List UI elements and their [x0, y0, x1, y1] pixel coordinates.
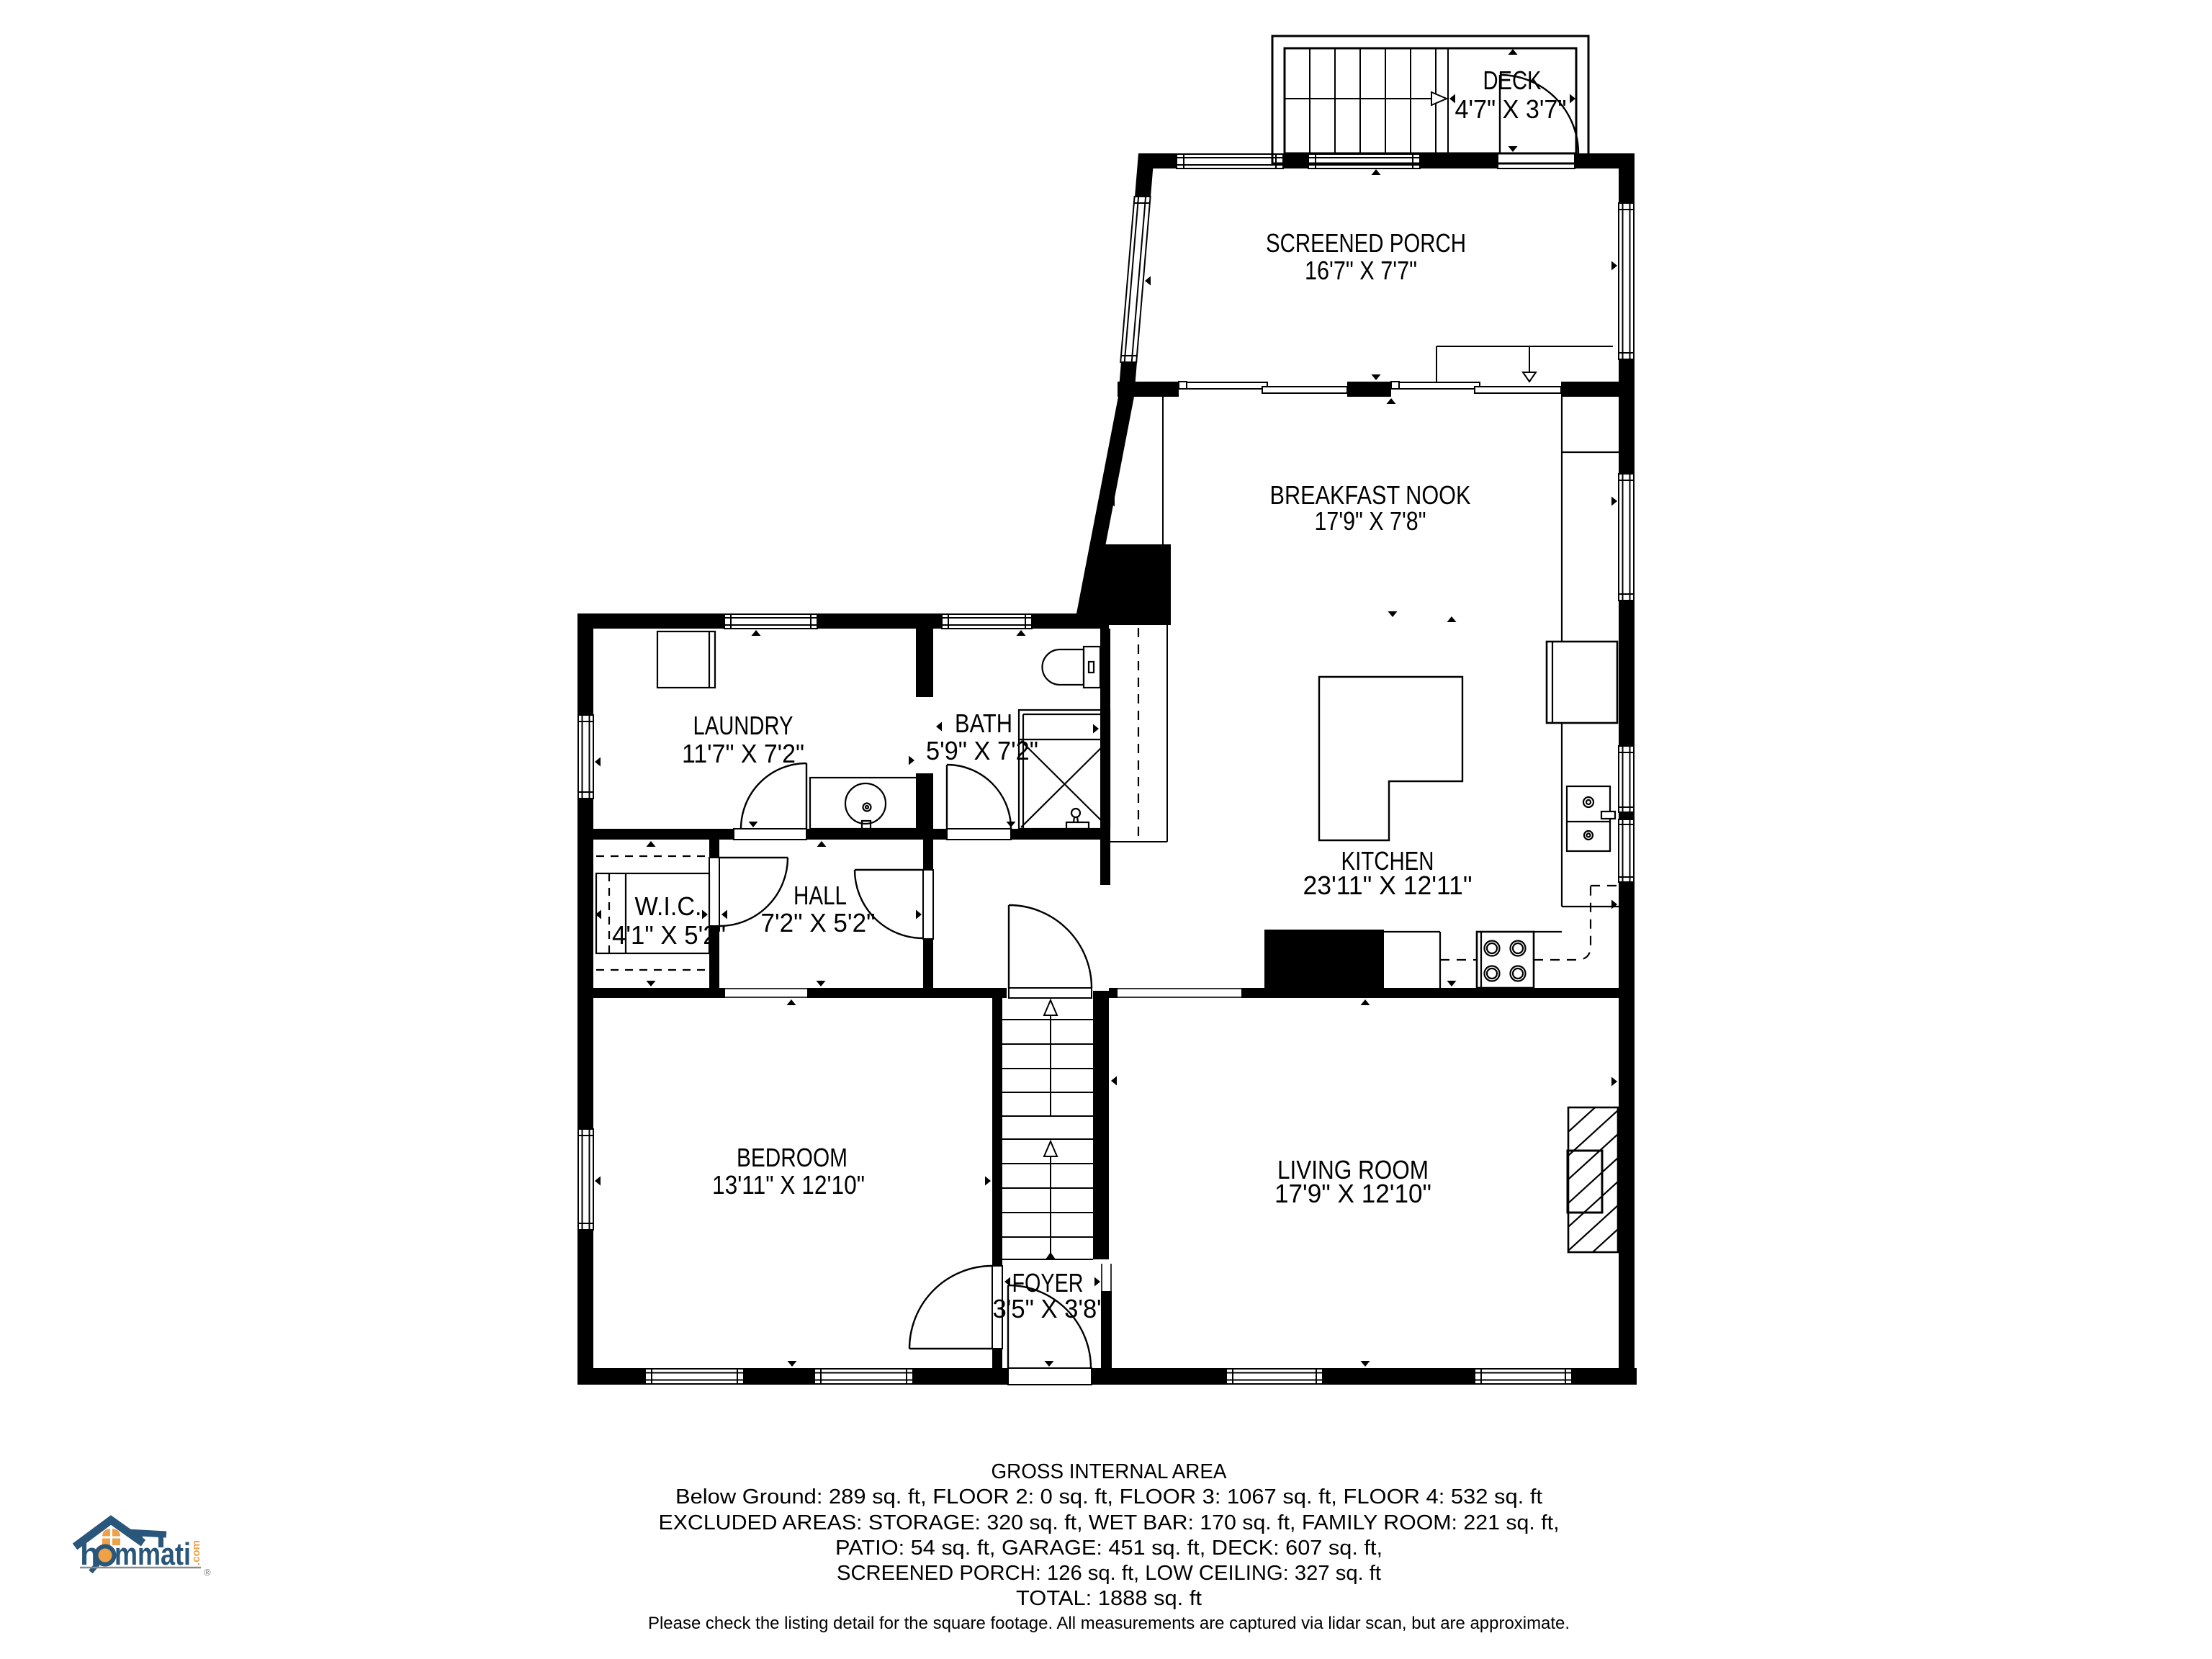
svg-text:DECK: DECK — [1483, 66, 1542, 95]
svg-text:EXCLUDED AREAS: STORAGE: 320 s: EXCLUDED AREAS: STORAGE: 320 sq. ft, WET… — [659, 1511, 1560, 1534]
svg-text:SCREENED PORCH: SCREENED PORCH — [1266, 228, 1466, 258]
svg-text:.com: .com — [190, 1540, 202, 1565]
svg-text:BEDROOM: BEDROOM — [737, 1143, 848, 1172]
svg-text:5'9" X 7'2": 5'9" X 7'2" — [926, 736, 1038, 765]
svg-text:FOYER: FOYER — [1012, 1268, 1084, 1298]
svg-text:TOTAL: 1888 sq. ft: TOTAL: 1888 sq. ft — [1016, 1587, 1202, 1610]
svg-text:PATIO: 54 sq. ft, GARAGE: 451: PATIO: 54 sq. ft, GARAGE: 451 sq. ft, DE… — [835, 1537, 1382, 1560]
svg-text:®: ® — [204, 1567, 211, 1578]
svg-text:11'7" X 7'2": 11'7" X 7'2" — [682, 739, 804, 768]
svg-text:Please check the listing detai: Please check the listing detail for the … — [648, 1614, 1570, 1633]
svg-text:7'2" X 5'2": 7'2" X 5'2" — [761, 908, 876, 938]
svg-text:HALL: HALL — [793, 881, 847, 910]
svg-text:13'11" X 12'10": 13'11" X 12'10" — [712, 1170, 865, 1200]
svg-text:mmati: mmati — [114, 1537, 191, 1572]
svg-text:17'9" X 7'8": 17'9" X 7'8" — [1315, 506, 1426, 536]
svg-text:4'1" X 5'2": 4'1" X 5'2" — [612, 920, 726, 950]
svg-text:23'11" X 12'11": 23'11" X 12'11" — [1303, 871, 1473, 900]
svg-text:W.I.C.: W.I.C. — [635, 891, 702, 921]
svg-text:17'9" X 12'10": 17'9" X 12'10" — [1274, 1179, 1431, 1208]
svg-text:GROSS INTERNAL AREA: GROSS INTERNAL AREA — [992, 1460, 1228, 1483]
svg-text:3'5" X 3'8": 3'5" X 3'8" — [993, 1294, 1106, 1323]
svg-text:SCREENED PORCH: 126 sq. ft, LO: SCREENED PORCH: 126 sq. ft, LOW CEILING:… — [837, 1562, 1381, 1585]
svg-text:BATH: BATH — [955, 709, 1012, 738]
svg-text:16'7" X 7'7": 16'7" X 7'7" — [1305, 256, 1417, 285]
svg-text:LAUNDRY: LAUNDRY — [693, 711, 793, 740]
svg-text:4'7" X 3'7": 4'7" X 3'7" — [1455, 94, 1567, 124]
svg-text:BREAKFAST NOOK: BREAKFAST NOOK — [1270, 480, 1471, 510]
svg-text:Below Ground: 289 sq. ft, FLOO: Below Ground: 289 sq. ft, FLOOR 2: 0 sq.… — [675, 1485, 1542, 1509]
